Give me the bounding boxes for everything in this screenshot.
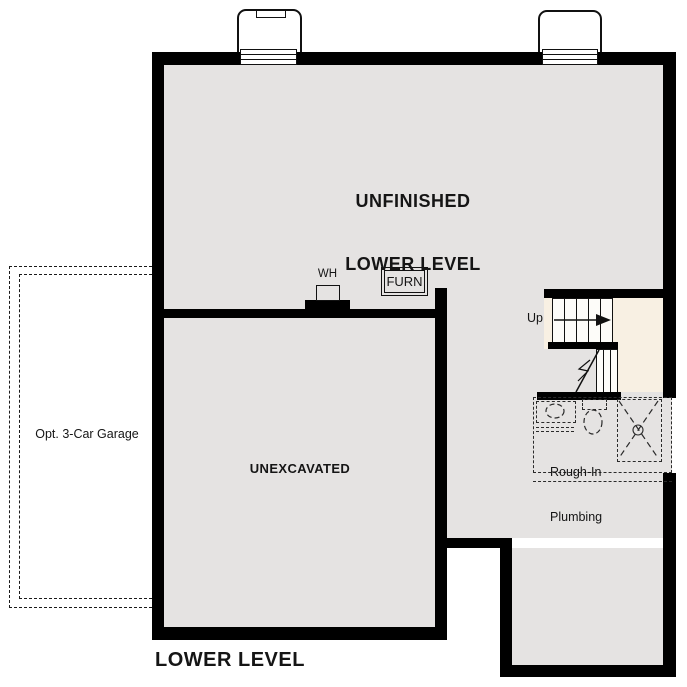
window-well-right	[538, 10, 602, 54]
window-well-left-step	[256, 10, 286, 18]
sink-counter-line	[536, 431, 574, 432]
stair-upper-flight	[552, 298, 613, 343]
window-mullion	[241, 54, 296, 55]
window-mullion	[543, 59, 597, 60]
stair-tread-line	[588, 299, 589, 342]
wall-right-upper	[663, 52, 676, 398]
page-title: LOWER LEVEL	[155, 649, 305, 672]
wall-stair-mid	[548, 342, 618, 349]
rough-in-shower	[617, 399, 662, 462]
wall-unexcavated-right	[435, 288, 447, 640]
wall-stair-top	[544, 289, 663, 298]
stair-tread-line	[600, 299, 601, 342]
unfinished-label-line2: LOWER LEVEL	[293, 254, 533, 275]
rough-in-sink	[536, 401, 576, 423]
basement-window-right	[542, 49, 598, 65]
unfinished-label-line1: UNFINISHED	[293, 191, 533, 212]
wall-unexcavated-bottom	[152, 627, 447, 640]
window-mullion	[241, 59, 296, 60]
wall-notch-top	[447, 538, 512, 548]
basement-window-left	[240, 49, 297, 65]
floor-under-stairs	[544, 349, 596, 392]
wall-bottom-right	[500, 665, 676, 677]
garage-label: Opt. 3-Car Garage	[12, 427, 162, 441]
wall-notch-right	[500, 548, 512, 677]
plumbing-label: Rough-In Plumbing	[550, 435, 602, 555]
floor-plan: Opt. 3-Car Garage	[0, 0, 687, 687]
plumbing-label-line2: Plumbing	[550, 510, 602, 525]
stair-tread-line	[564, 299, 565, 342]
window-mullion	[543, 54, 597, 55]
unexcavated-label: UNEXCAVATED	[200, 461, 400, 476]
sink-counter-line	[536, 427, 574, 428]
wall-right-lower	[663, 473, 676, 677]
plumbing-label-line1: Rough-In	[550, 465, 602, 480]
stair-tread-line	[603, 350, 604, 393]
stair-tread-line	[576, 299, 577, 342]
stair-tread-line	[610, 350, 611, 393]
rough-in-toilet-tank	[582, 399, 607, 410]
wall-left	[152, 52, 164, 640]
floor-bottom-right	[512, 548, 663, 665]
stair-lower-flight	[596, 349, 618, 394]
stairs-up-label: Up	[527, 311, 543, 325]
unfinished-lower-level-label: UNFINISHED LOWER LEVEL	[293, 149, 533, 317]
